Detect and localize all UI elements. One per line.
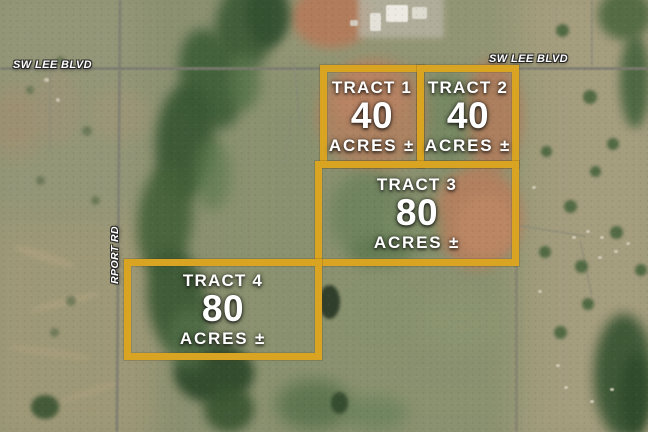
tract-4-acreage: 80 <box>202 290 244 328</box>
tract-2-acreage: 40 <box>447 97 489 135</box>
tract-3-unit: ACRES ± <box>374 233 460 253</box>
tract-2-unit: ACRES ± <box>425 136 511 156</box>
tract-1-boundary: TRACT 1 40 ACRES ± <box>320 65 424 168</box>
road-label-airport-rd: RPORT RD <box>109 210 121 300</box>
tract-2-boundary: TRACT 2 40 ACRES ± <box>417 65 519 168</box>
tract-3-acreage: 80 <box>396 194 438 232</box>
tract-1-acreage: 40 <box>351 97 393 135</box>
tract-1-unit: ACRES ± <box>329 136 415 156</box>
road-label-sw-lee-blvd-east: SW LEE BLVD <box>489 53 568 65</box>
aerial-map: SW LEE BLVD SW LEE BLVD RPORT RD TRACT 1… <box>0 0 648 432</box>
tract-4-unit: ACRES ± <box>180 329 266 349</box>
road-label-sw-lee-blvd-west: SW LEE BLVD <box>13 59 92 71</box>
tract-3-boundary: TRACT 3 80 ACRES ± <box>315 161 519 266</box>
tract-4-boundary: TRACT 4 80 ACRES ± <box>124 259 322 360</box>
